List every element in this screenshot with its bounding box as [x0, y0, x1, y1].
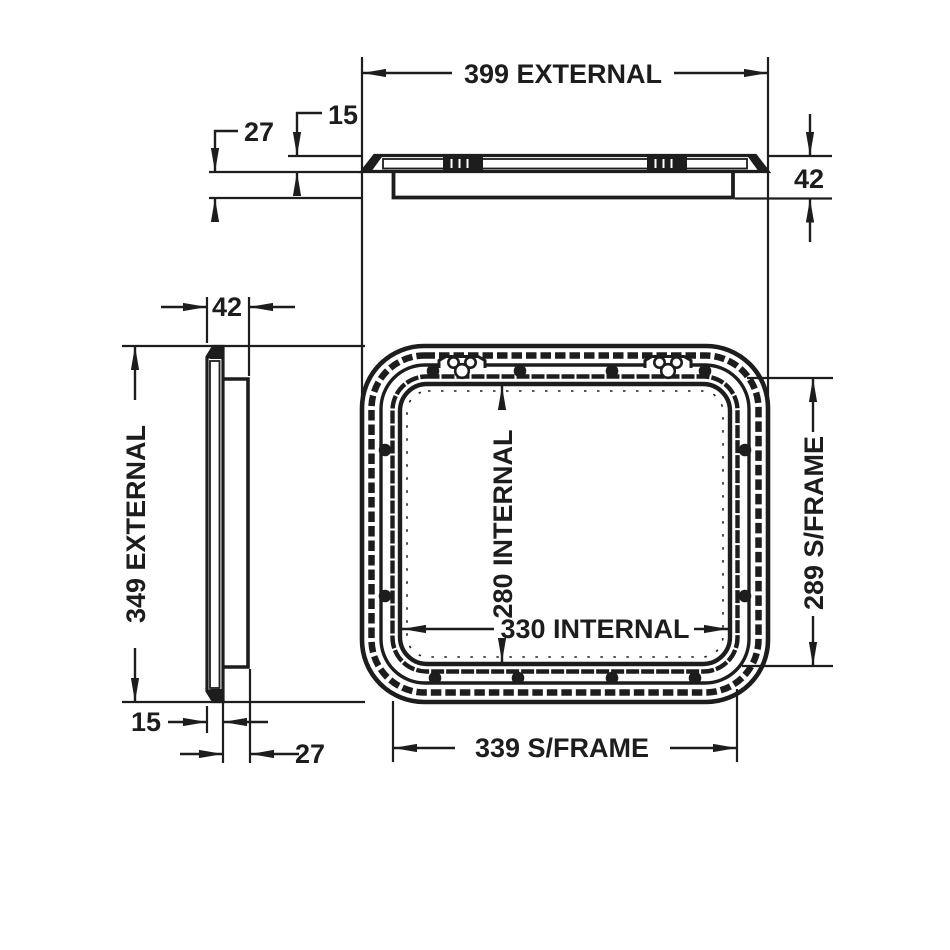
- hatch-technical-drawing: 399 EXTERNAL 15 27 42: [0, 0, 950, 950]
- dim-label-overall-depth: 42: [794, 164, 824, 194]
- screw-dot: [606, 365, 619, 378]
- front-view: 280 INTERNAL 330 INTERNAL 289 S/FRAME 33…: [362, 346, 833, 763]
- dim-label-external-height: 349 EXTERNAL: [121, 425, 151, 623]
- dim-external-width: 399 EXTERNAL: [362, 59, 768, 89]
- dim-flange-thickness: 15: [297, 100, 358, 196]
- screw-dot: [699, 365, 712, 378]
- dim-label-flange-thickness: 15: [131, 707, 161, 737]
- drawing-canvas: 399 EXTERNAL 15 27 42: [0, 0, 950, 950]
- screw-dot: [606, 672, 619, 685]
- dim-overall-depth: 42: [161, 292, 295, 376]
- screw-dot: [739, 444, 752, 457]
- dim-label-frame-depth: 27: [295, 739, 325, 769]
- spigot-box: [223, 379, 248, 667]
- screw-dot: [514, 365, 527, 378]
- screw-dot: [379, 444, 392, 457]
- screw-dot: [739, 590, 752, 603]
- outer-frame-edge: [362, 346, 768, 702]
- spigot-box: [394, 172, 734, 198]
- dim-label-flange-thickness: 15: [328, 100, 358, 130]
- dim-label-subframe-width: 339 S/FRAME: [475, 733, 649, 763]
- dim-label-internal-height: 280 INTERNAL: [488, 429, 518, 618]
- dim-label-external-width: 399 EXTERNAL: [464, 59, 662, 89]
- dim-frame-depth: 27: [180, 669, 325, 769]
- dim-label-overall-depth: 42: [212, 292, 242, 322]
- dim-external-height: 349 EXTERNAL: [121, 346, 151, 702]
- screw-dot: [689, 672, 702, 685]
- dim-label-subframe-height: 289 S/FRAME: [799, 436, 829, 610]
- dim-frame-depth: 27: [215, 117, 274, 222]
- dim-overall-depth: 42: [735, 114, 832, 242]
- screw-dot: [379, 590, 392, 603]
- hinge-block-left: [443, 155, 483, 172]
- side-profile-view: 42 349 EXTERNAL 15 27: [121, 292, 365, 769]
- dim-subframe-height: 289 S/FRAME: [742, 378, 833, 666]
- screw-dot: [429, 672, 442, 685]
- screw-dot: [427, 365, 440, 378]
- dim-label-frame-depth: 27: [244, 117, 274, 147]
- screw-dot: [512, 672, 525, 685]
- dim-internal-width: 330 INTERNAL: [402, 614, 728, 644]
- dim-label-internal-width: 330 INTERNAL: [500, 614, 689, 644]
- hinge-block-right: [647, 155, 687, 172]
